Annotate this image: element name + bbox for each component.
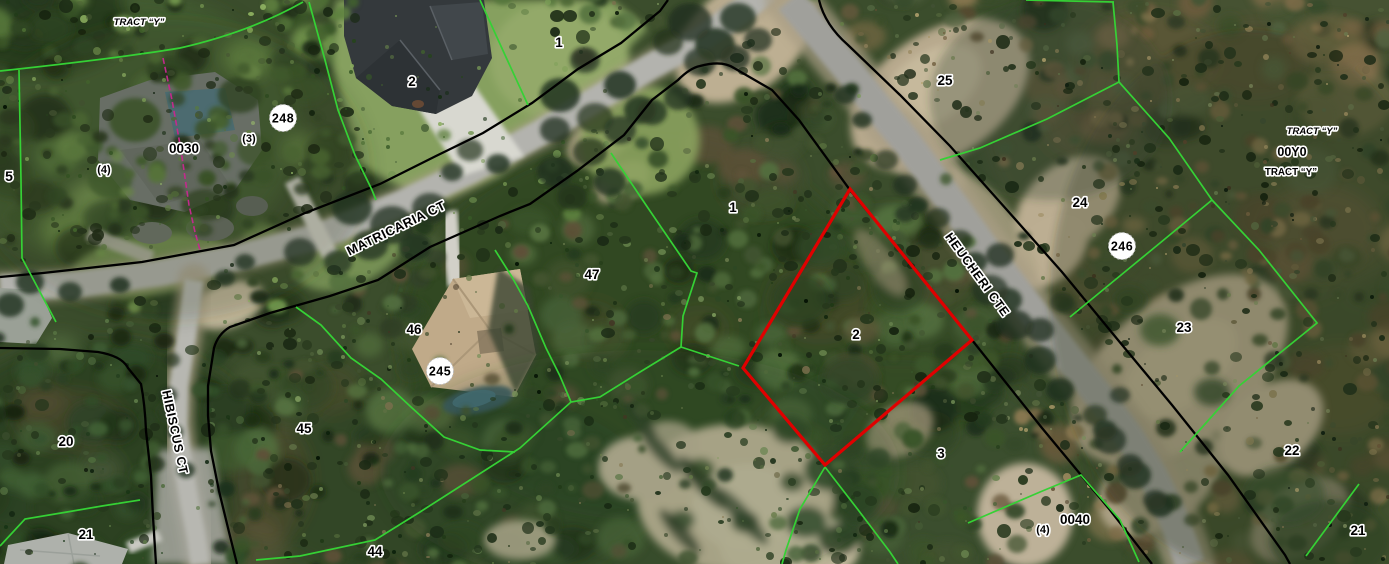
svg-text:25: 25 [937, 73, 953, 88]
svg-text:245: 245 [429, 365, 451, 379]
svg-text:(4): (4) [97, 164, 111, 176]
svg-text:23: 23 [1176, 320, 1192, 335]
svg-text:TRACT “Y”: TRACT “Y” [1287, 126, 1338, 137]
svg-text:0030: 0030 [169, 141, 199, 156]
svg-text:TRACT “Y”: TRACT “Y” [114, 17, 165, 28]
svg-text:21: 21 [78, 527, 94, 542]
svg-text:1: 1 [729, 200, 737, 215]
svg-text:47: 47 [584, 267, 599, 282]
svg-text:20: 20 [58, 434, 73, 449]
svg-text:46: 46 [406, 322, 422, 337]
svg-text:44: 44 [367, 544, 383, 559]
svg-text:248: 248 [272, 112, 294, 126]
svg-text:(4): (4) [1036, 524, 1050, 536]
svg-text:2: 2 [852, 327, 860, 342]
svg-text:3: 3 [937, 446, 945, 461]
svg-text:24: 24 [1072, 195, 1088, 210]
svg-text:5: 5 [5, 168, 13, 184]
svg-text:1: 1 [555, 35, 563, 50]
svg-text:22: 22 [1284, 443, 1299, 458]
svg-text:(3): (3) [242, 133, 256, 145]
svg-text:TRACT “Y”: TRACT “Y” [1265, 167, 1317, 178]
svg-text:0040: 0040 [1060, 512, 1090, 527]
svg-text:45: 45 [296, 421, 312, 436]
svg-text:00Y0: 00Y0 [1277, 145, 1306, 159]
svg-text:2: 2 [408, 74, 416, 89]
svg-text:21: 21 [1350, 523, 1366, 538]
svg-text:246: 246 [1111, 240, 1133, 254]
